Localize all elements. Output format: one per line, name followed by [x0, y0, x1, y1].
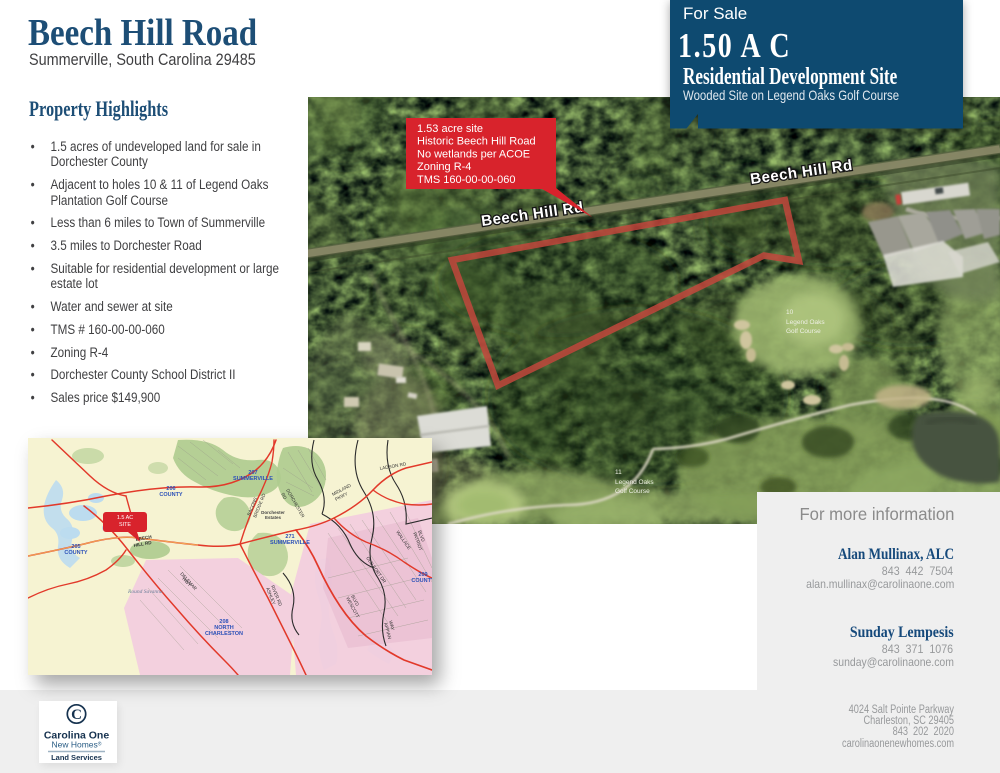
svg-text:COUNTY: COUNTY [64, 550, 88, 556]
svg-text:C: C [71, 707, 82, 723]
svg-text:SITE: SITE [119, 522, 131, 528]
svg-text:CHARLESTON: CHARLESTON [205, 631, 243, 637]
svg-text:SUMMERVILLE: SUMMERVILLE [270, 540, 310, 546]
svg-text:1.5 AC: 1.5 AC [117, 515, 133, 521]
svg-text:No wetlands per ACOE: No wetlands per ACOE [417, 148, 530, 160]
svg-text:Historic Beech Hill Road: Historic Beech Hill Road [417, 136, 536, 148]
svg-text:New Homes®: New Homes® [52, 740, 102, 750]
svg-text:Land Services: Land Services [51, 753, 102, 762]
svg-text:COUNTY: COUNTY [411, 578, 432, 584]
svg-text:Legend Oaks: Legend Oaks [615, 479, 654, 486]
svg-text:Legend Oaks: Legend Oaks [786, 319, 825, 326]
svg-text:Zoning R-4: Zoning R-4 [417, 161, 471, 173]
svg-text:Estates: Estates [265, 515, 282, 520]
svg-text:Round Savanna: Round Savanna [127, 589, 163, 595]
svg-text:TMS 160-00-00-060: TMS 160-00-00-060 [417, 174, 515, 186]
svg-text:Golf Course: Golf Course [786, 328, 821, 335]
svg-text:11: 11 [615, 469, 622, 476]
svg-text:COUNTY: COUNTY [159, 492, 183, 498]
svg-text:SUMMERVILLE: SUMMERVILLE [233, 476, 273, 482]
svg-text:10: 10 [786, 309, 794, 316]
svg-text:Golf Course: Golf Course [615, 488, 650, 495]
svg-text:1.53 acre site: 1.53 acre site [417, 123, 483, 135]
